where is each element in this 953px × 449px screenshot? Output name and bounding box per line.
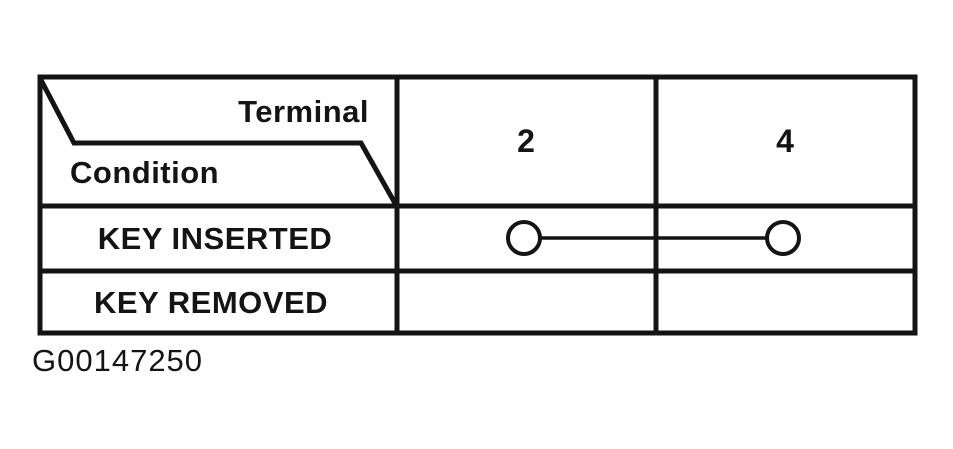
continuity-table-figure: Terminal Condition 2 4 KEY INSERTED KEY …: [0, 0, 953, 449]
row-label-key-inserted: KEY INSERTED: [98, 221, 333, 256]
continuity-terminal-2-circle: [508, 222, 540, 254]
column-header-terminal-4: 4: [776, 123, 794, 159]
continuity-terminal-4-circle: [767, 222, 799, 254]
figure-id-caption: G00147250: [32, 343, 203, 378]
header-terminal-label: Terminal: [238, 94, 369, 129]
scanned-figure-page: Terminal Condition 2 4 KEY INSERTED KEY …: [0, 0, 953, 449]
column-header-terminal-2: 2: [517, 123, 535, 159]
header-condition-label: Condition: [70, 155, 219, 190]
row-label-key-removed: KEY REMOVED: [94, 285, 328, 320]
